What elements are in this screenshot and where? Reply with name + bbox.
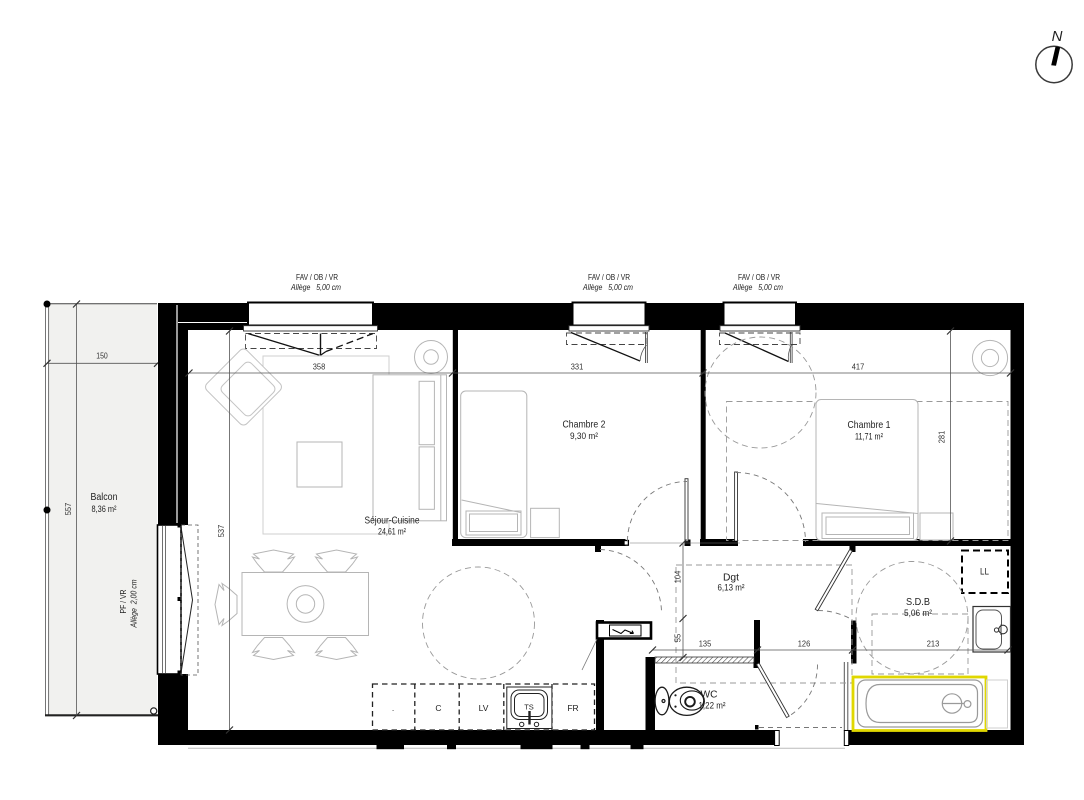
svg-text:331: 331 [571,363,584,372]
svg-text:TS: TS [524,703,534,712]
svg-text:24,61 m²: 24,61 m² [378,527,406,538]
svg-text:Allège 5,00 cm: Allège 5,00 cm [582,283,633,292]
svg-text:135: 135 [699,640,712,649]
svg-text:1,22 m²: 1,22 m² [699,701,726,712]
svg-text:S.D.B: S.D.B [906,596,930,608]
svg-text:Allège 2,00 cm: Allège 2,00 cm [130,579,139,628]
svg-text:WC: WC [701,689,718,701]
svg-text:LV: LV [479,703,489,713]
svg-text:.: . [392,703,394,713]
svg-text:FAV / OB / VR: FAV / OB / VR [296,273,338,282]
svg-text:C: C [435,703,441,713]
svg-text:6,13 m²: 6,13 m² [718,583,745,594]
svg-text:126: 126 [798,640,811,649]
svg-text:557: 557 [64,502,73,515]
svg-text:8,36 m²: 8,36 m² [92,504,117,515]
svg-text:9,30 m²: 9,30 m² [570,431,598,442]
svg-text:Allège 5,00 cm: Allège 5,00 cm [290,283,341,292]
svg-text:LL: LL [980,567,989,577]
svg-text:55: 55 [674,633,683,642]
svg-text:417: 417 [852,363,865,372]
svg-text:11,71 m²: 11,71 m² [855,432,883,443]
svg-text:213: 213 [927,640,940,649]
svg-text:FAV / OB / VR: FAV / OB / VR [588,273,630,282]
svg-text:5,06 m²: 5,06 m² [904,608,932,619]
svg-text:FR: FR [567,703,578,713]
svg-text:Balcon: Balcon [91,491,118,503]
svg-text:FAV / OB / VR: FAV / OB / VR [738,273,780,282]
svg-text:Chambre 1: Chambre 1 [848,419,891,431]
svg-text:150: 150 [96,352,108,361]
svg-text:N: N [1052,28,1063,45]
svg-text:Allège 5,00 cm: Allège 5,00 cm [732,283,783,292]
svg-text:358: 358 [313,363,326,372]
svg-text:281: 281 [938,430,947,443]
svg-text:104: 104 [674,570,683,583]
svg-text:PF / VR: PF / VR [119,589,128,613]
svg-text:Séjour-Cuisine: Séjour-Cuisine [365,515,420,527]
svg-text:Chambre 2: Chambre 2 [563,419,606,431]
svg-text:537: 537 [217,524,226,537]
